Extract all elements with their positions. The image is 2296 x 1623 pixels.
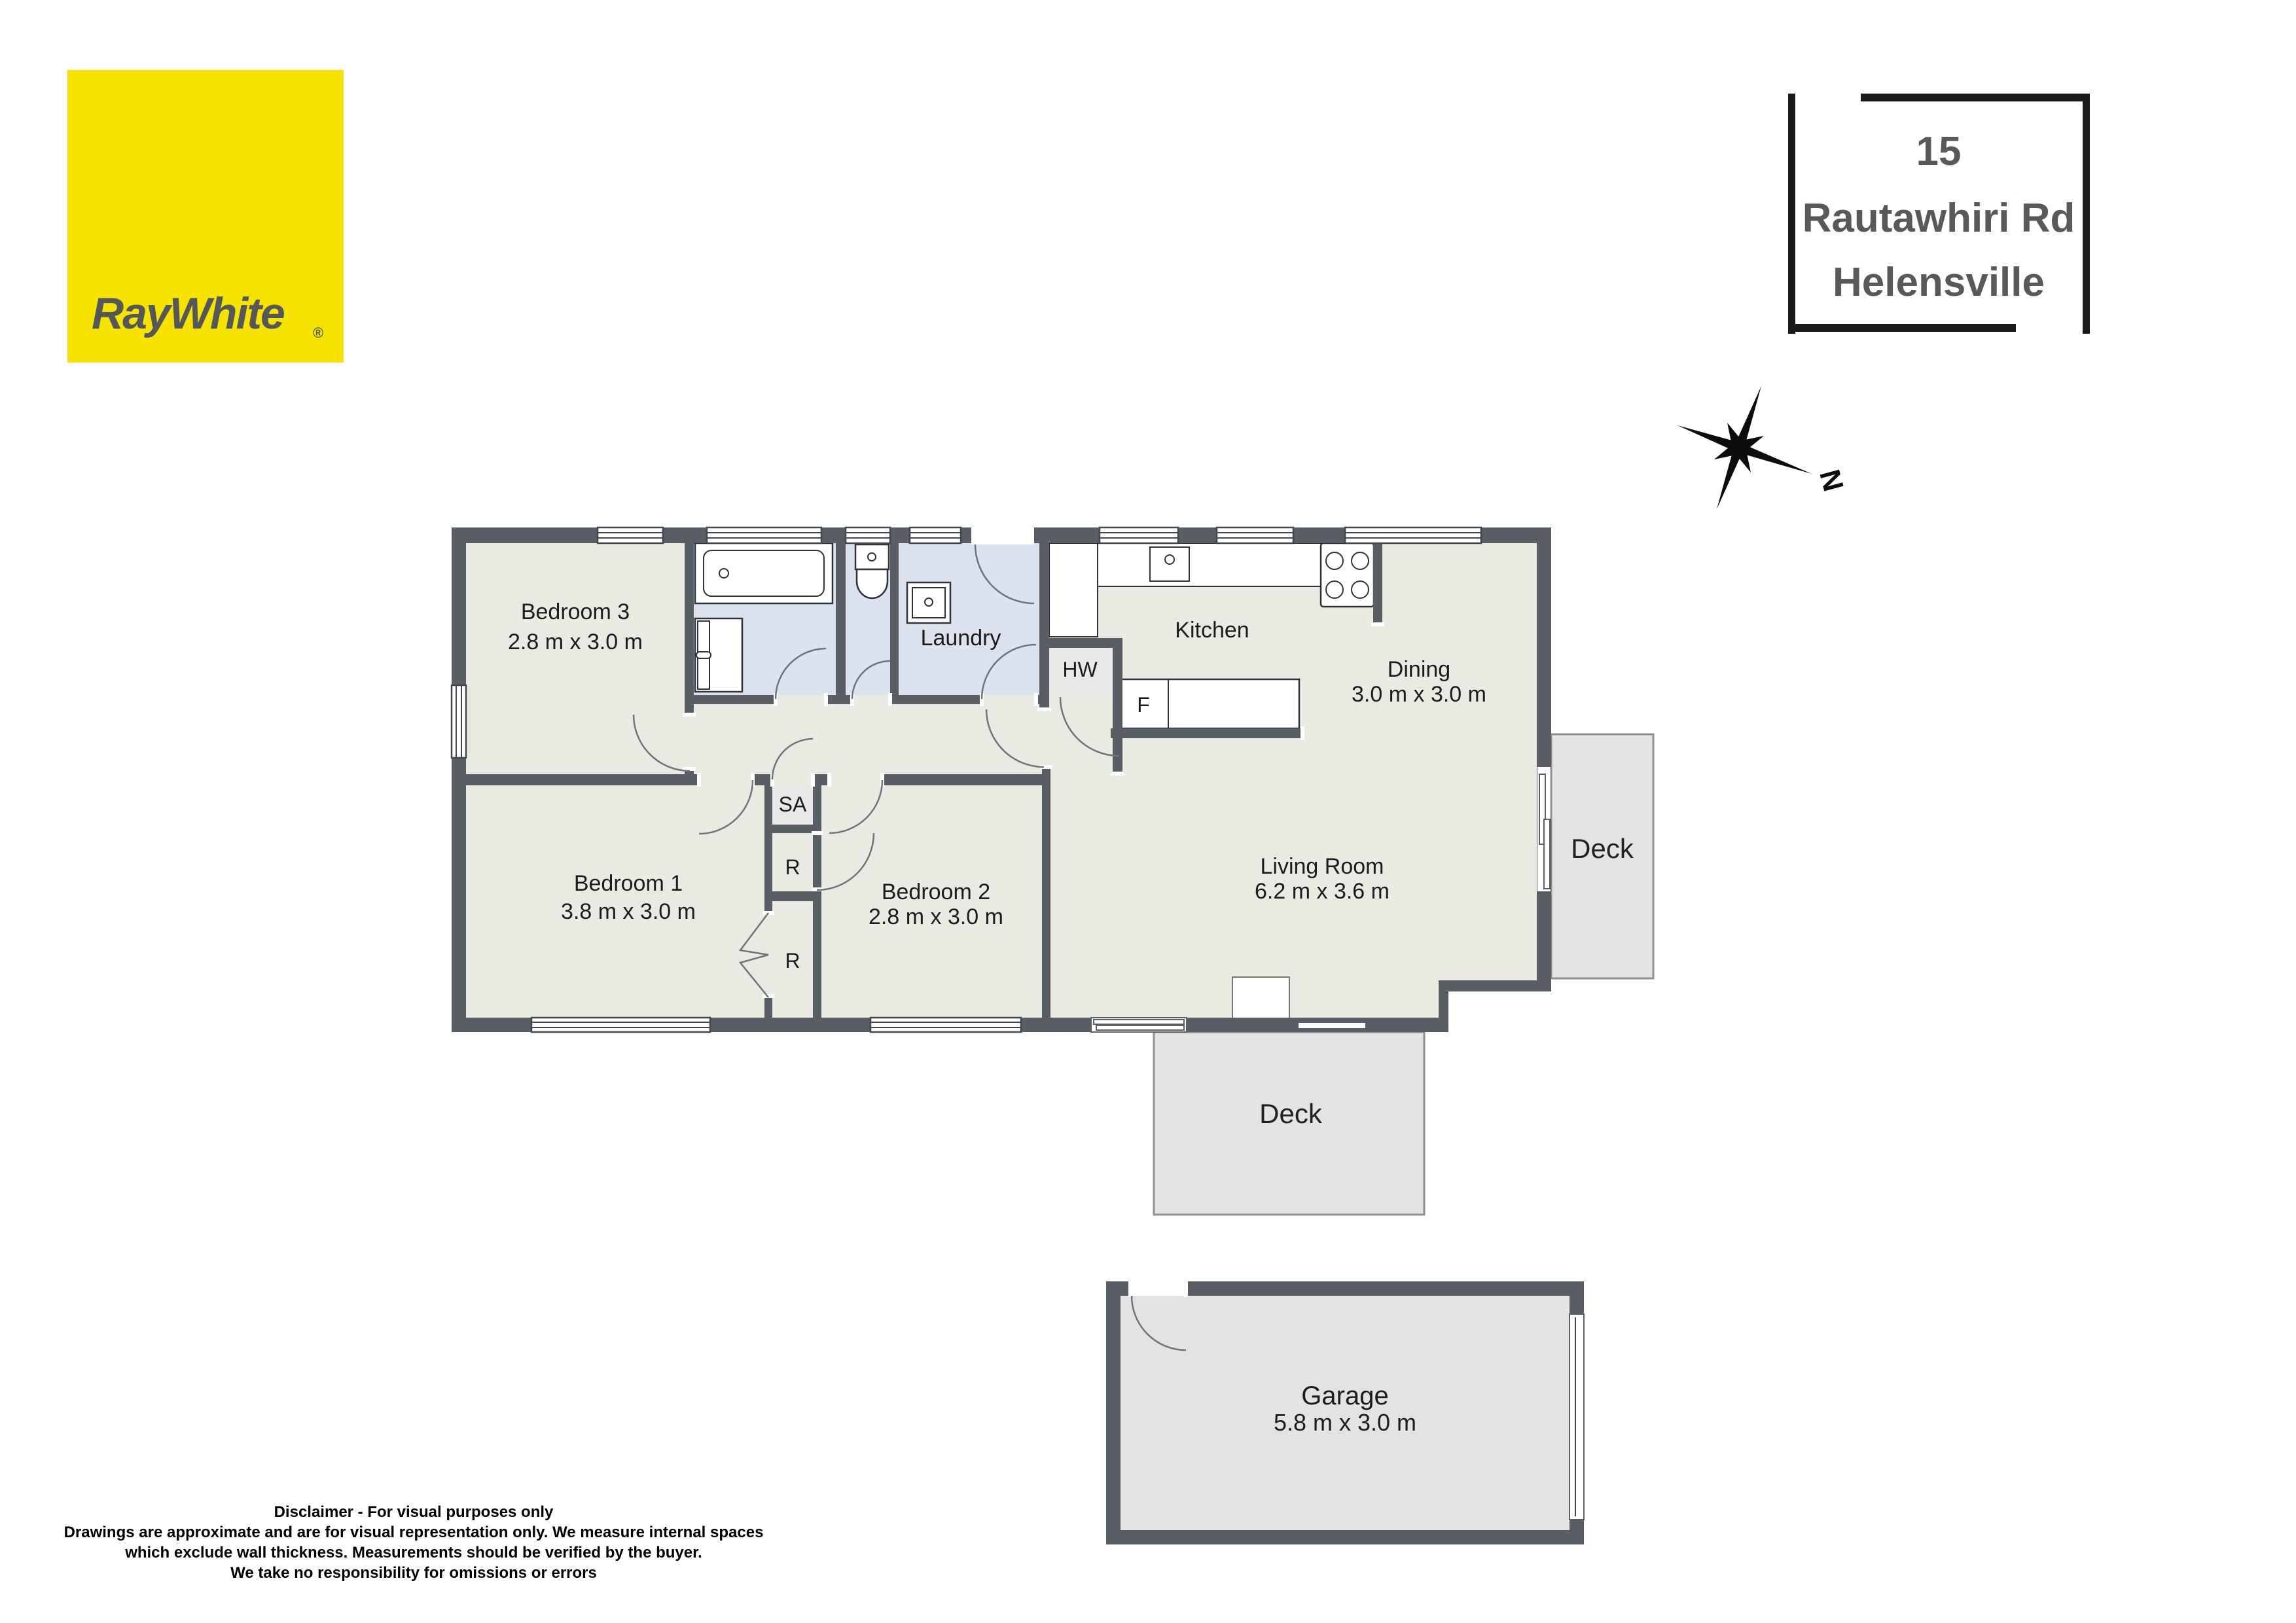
garage-dims: 5.8 m x 3.0 m bbox=[1274, 1409, 1416, 1436]
address-frame-bottom bbox=[1788, 324, 2016, 332]
storage-sa-label: SA bbox=[779, 793, 807, 816]
address-suburb: Helensville bbox=[1833, 260, 2045, 305]
address-street: Rautawhiri Rd bbox=[1803, 196, 2075, 241]
disclaimer-line1: Disclaimer - For visual purposes only bbox=[274, 1503, 554, 1521]
north-label: N bbox=[1813, 467, 1850, 495]
sliding-door-right-deck bbox=[1537, 771, 1551, 889]
raywhite-logo: RayWhite ® bbox=[67, 70, 344, 363]
window-bedroom2-bottom bbox=[870, 1018, 1021, 1032]
disclaimer-line2: Drawings are approximate and are for vis… bbox=[64, 1524, 764, 1541]
laundry-label: Laundry bbox=[921, 626, 1001, 651]
living-room-dims: 6.2 m x 3.6 m bbox=[1255, 879, 1390, 904]
dining-label: Dining bbox=[1388, 657, 1450, 682]
living-room-label: Living Room bbox=[1261, 854, 1384, 879]
address-frame-right bbox=[2083, 94, 2090, 334]
laundry-sink bbox=[907, 582, 950, 623]
kitchen-sink bbox=[1150, 547, 1189, 581]
window-bedroom1-bottom bbox=[531, 1018, 710, 1032]
address-box: 15 Rautawhiri Rd Helensville bbox=[1788, 94, 2090, 334]
sliding-panel-bottom bbox=[1298, 1022, 1366, 1029]
bedroom3-dims: 2.8 m x 3.0 m bbox=[508, 630, 643, 654]
dining-dims: 3.0 m x 3.0 m bbox=[1352, 682, 1486, 707]
shower bbox=[695, 618, 742, 692]
bathtub bbox=[695, 543, 833, 603]
north-compass: N bbox=[1677, 386, 1850, 509]
fridge-label: F bbox=[1137, 693, 1150, 717]
registered-mark-icon: ® bbox=[313, 325, 323, 341]
address-frame-top bbox=[1861, 94, 2090, 101]
robe-lower-label: R bbox=[785, 949, 800, 972]
bedroom3-label: Bedroom 3 bbox=[521, 599, 630, 624]
address-frame-left bbox=[1788, 94, 1795, 334]
toilet bbox=[855, 544, 889, 598]
window-laundry-top bbox=[910, 527, 961, 543]
hot-water-label: HW bbox=[1062, 658, 1098, 681]
raywhite-logo-text: RayWhite bbox=[92, 289, 284, 338]
kitchen-label: Kitchen bbox=[1175, 618, 1249, 643]
window-bathroom-top bbox=[707, 527, 821, 543]
compass-star-icon bbox=[1677, 386, 1812, 509]
garage-label: Garage bbox=[1301, 1382, 1388, 1410]
stove bbox=[1321, 543, 1374, 607]
deck-right-label: Deck bbox=[1571, 833, 1634, 864]
window-bedroom3-top bbox=[598, 527, 663, 543]
deck-bottom-label: Deck bbox=[1259, 1098, 1323, 1129]
address-number: 15 bbox=[1916, 129, 1962, 174]
floorplan-page: RayWhite ® 15 Rautawhiri Rd Helensville … bbox=[0, 0, 2296, 1623]
robe-upper-label: R bbox=[785, 855, 800, 879]
window-kitchen-top bbox=[1100, 527, 1178, 543]
disclaimer-line4: We take no responsibility for omissions … bbox=[230, 1564, 597, 1582]
window-dining-top-2 bbox=[1345, 527, 1481, 543]
window-bedroom3-left bbox=[452, 685, 466, 758]
bedroom1-dims: 3.8 m x 3.0 m bbox=[561, 899, 696, 924]
disclaimer: Disclaimer - For visual purposes only Dr… bbox=[64, 1503, 764, 1582]
sliding-door-bottom-deck bbox=[1091, 1018, 1187, 1032]
bedroom1-label: Bedroom 1 bbox=[574, 871, 683, 896]
garage-roller-door bbox=[1570, 1314, 1584, 1520]
window-dining-top-1 bbox=[1217, 527, 1293, 543]
bedroom2-dims: 2.8 m x 3.0 m bbox=[869, 904, 1003, 929]
fireplace bbox=[1232, 977, 1289, 1019]
bedroom2-label: Bedroom 2 bbox=[882, 880, 990, 904]
disclaimer-line3: which exclude wall thickness. Measuremen… bbox=[124, 1544, 702, 1561]
window-toilet-top bbox=[846, 527, 890, 543]
